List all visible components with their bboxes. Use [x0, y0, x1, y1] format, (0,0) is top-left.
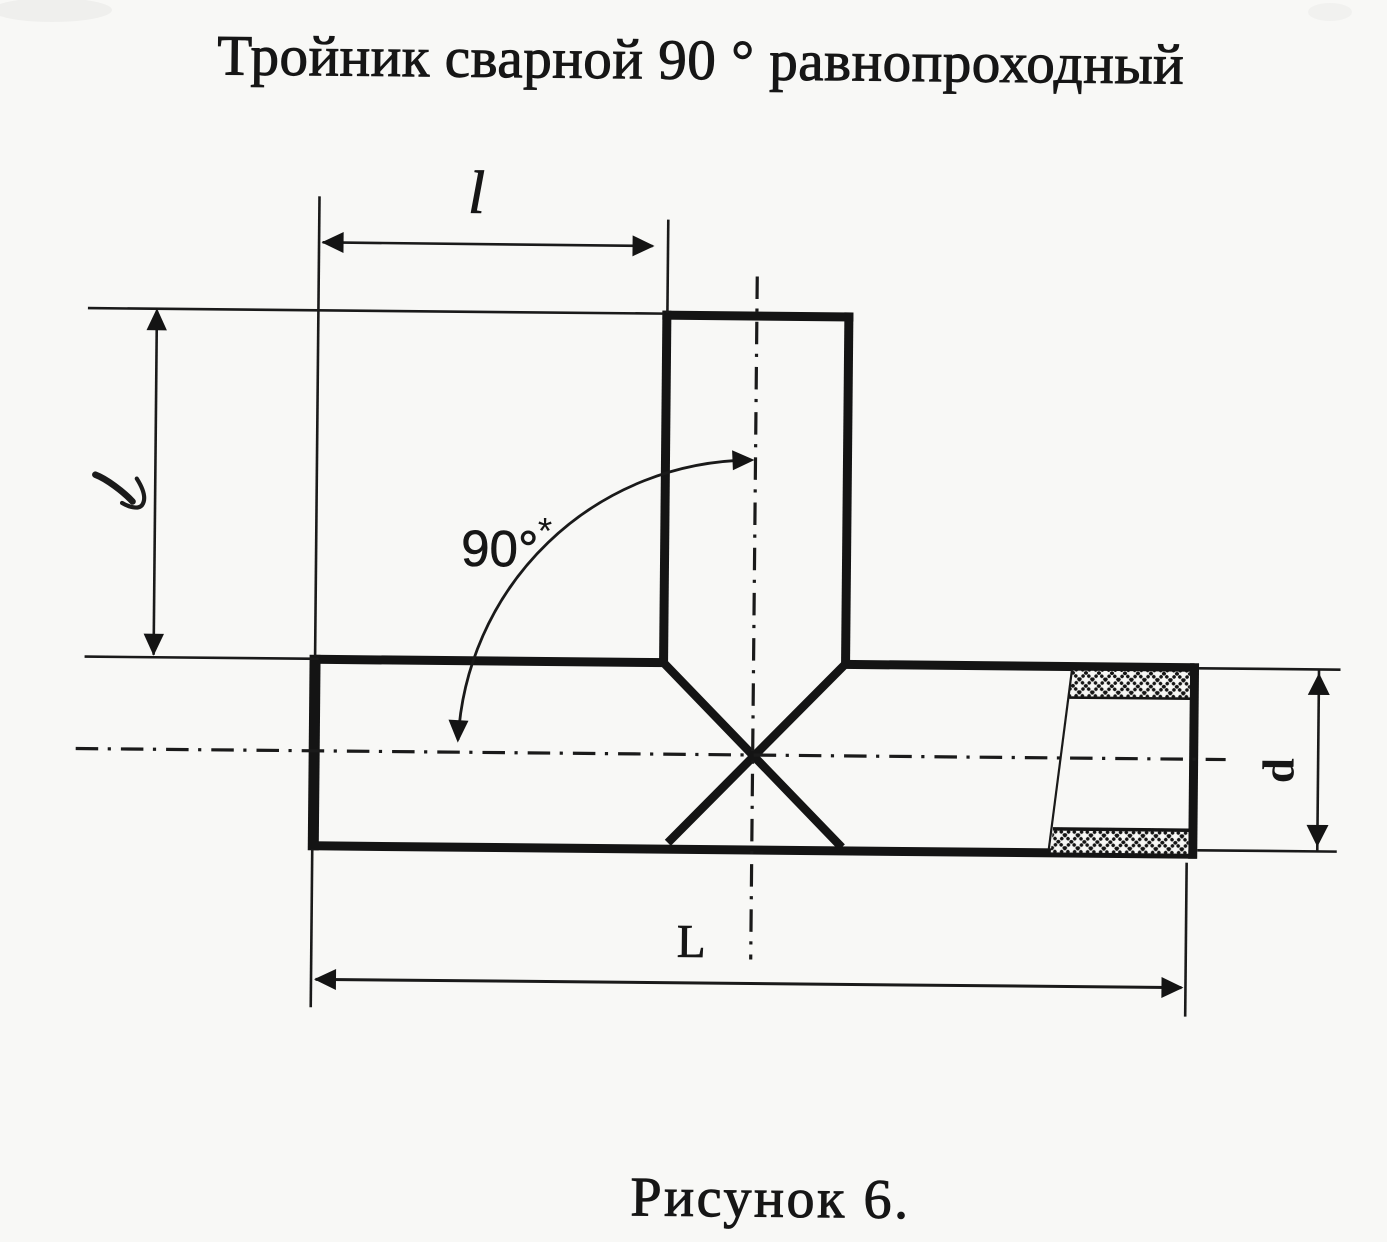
svg-text:d: d: [1253, 758, 1303, 784]
svg-text:90°: 90°: [461, 520, 539, 578]
svg-text:Рисунок 6.: Рисунок 6.: [630, 1166, 911, 1231]
svg-text:L: L: [677, 916, 706, 968]
svg-text:l: l: [468, 160, 486, 227]
svg-text:Тройник сварной 90 ° равнопрох: Тройник сварной 90 ° равнопроходный: [217, 24, 1185, 96]
